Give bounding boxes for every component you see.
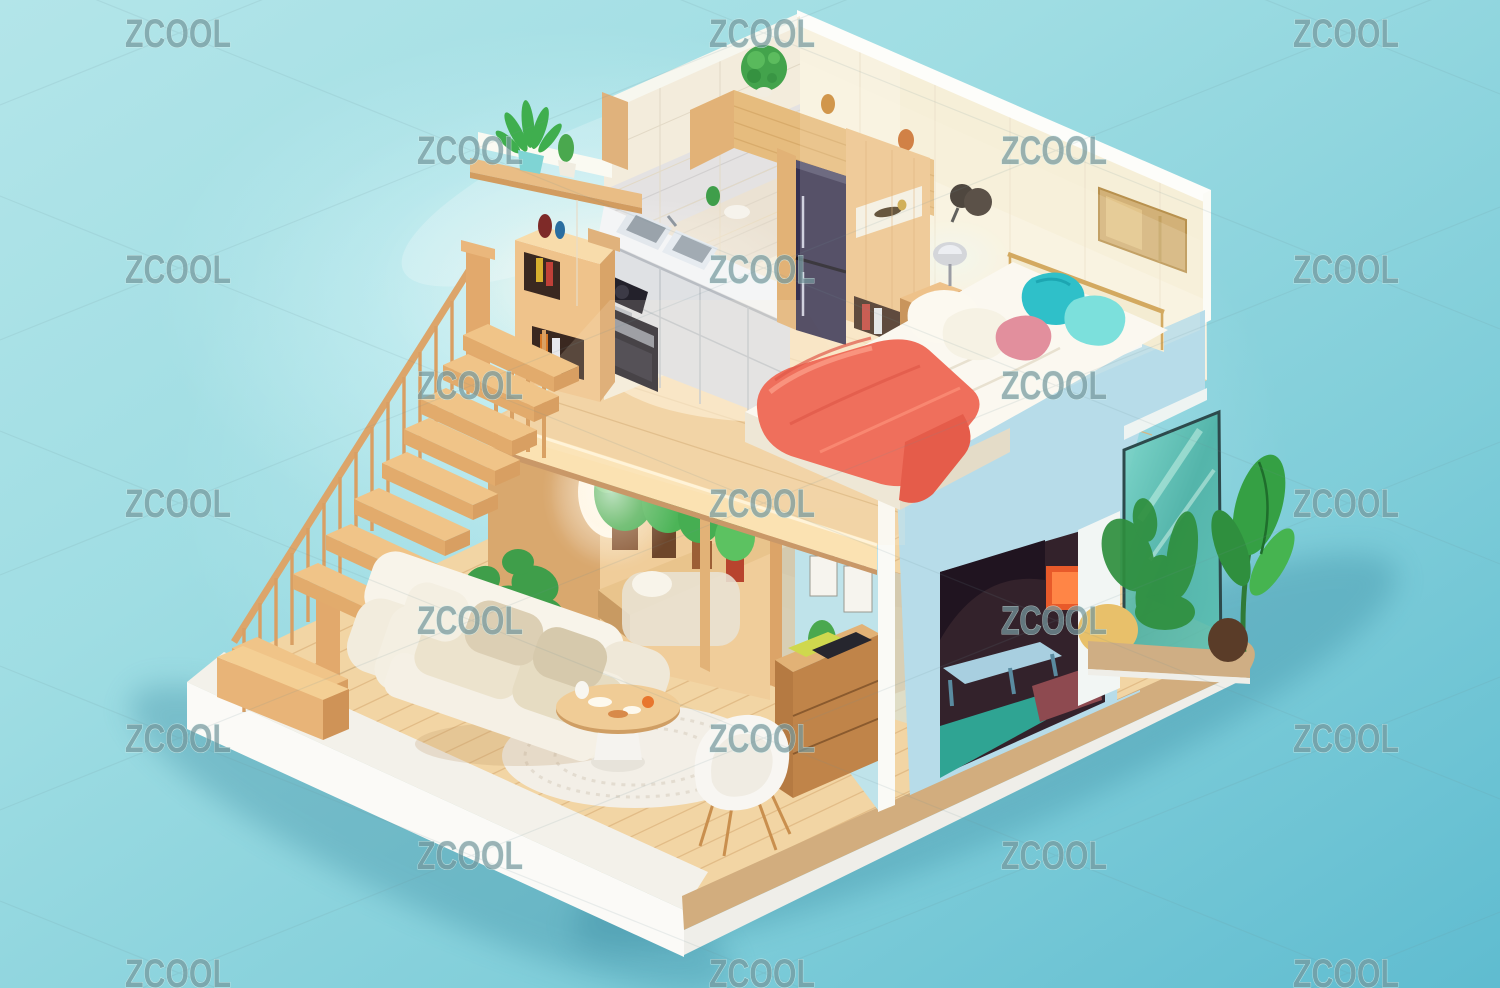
svg-text:ZCOOL: ZCOOL	[709, 952, 815, 988]
svg-text:ZCOOL: ZCOOL	[125, 12, 231, 56]
svg-text:ZCOOL: ZCOOL	[709, 482, 815, 526]
svg-text:ZCOOL: ZCOOL	[1293, 717, 1399, 761]
svg-text:ZCOOL: ZCOOL	[1293, 952, 1399, 988]
svg-text:ZCOOL: ZCOOL	[1293, 248, 1399, 292]
svg-text:ZCOOL: ZCOOL	[709, 717, 815, 761]
svg-text:ZCOOL: ZCOOL	[1001, 834, 1107, 878]
svg-text:ZCOOL: ZCOOL	[1293, 12, 1399, 56]
svg-text:ZCOOL: ZCOOL	[1001, 599, 1107, 643]
svg-text:ZCOOL: ZCOOL	[417, 599, 523, 643]
svg-text:ZCOOL: ZCOOL	[417, 129, 523, 173]
svg-text:ZCOOL: ZCOOL	[125, 717, 231, 761]
svg-text:ZCOOL: ZCOOL	[709, 248, 815, 292]
svg-text:ZCOOL: ZCOOL	[1001, 129, 1107, 173]
svg-text:ZCOOL: ZCOOL	[1001, 364, 1107, 408]
svg-text:ZCOOL: ZCOOL	[417, 364, 523, 408]
svg-text:ZCOOL: ZCOOL	[417, 834, 523, 878]
svg-text:ZCOOL: ZCOOL	[1293, 482, 1399, 526]
svg-text:ZCOOL: ZCOOL	[709, 12, 815, 56]
svg-text:ZCOOL: ZCOOL	[125, 952, 231, 988]
svg-text:ZCOOL: ZCOOL	[125, 482, 231, 526]
svg-text:ZCOOL: ZCOOL	[125, 248, 231, 292]
